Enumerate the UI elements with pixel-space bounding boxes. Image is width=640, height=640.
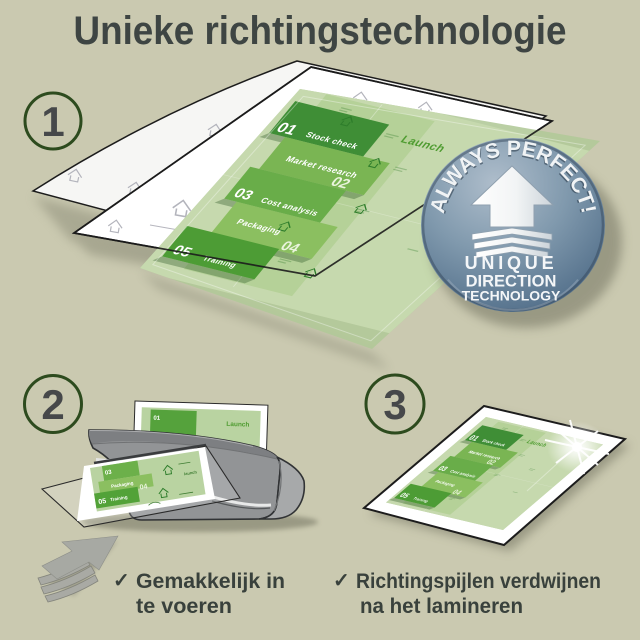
svg-text:TECHNOLOGY: TECHNOLOGY bbox=[462, 288, 561, 304]
svg-text:04: 04 bbox=[139, 483, 148, 491]
svg-text:te voeren: te voeren bbox=[136, 595, 232, 618]
svg-text:2: 2 bbox=[41, 381, 64, 428]
svg-text:Launch: Launch bbox=[226, 421, 249, 429]
svg-text:3: 3 bbox=[383, 381, 406, 428]
svg-text:UNIQUE: UNIQUE bbox=[465, 253, 558, 273]
svg-text:✓: ✓ bbox=[333, 570, 350, 592]
svg-text:Richtingspijlen verdwijnen: Richtingspijlen verdwijnen bbox=[356, 570, 601, 593]
svg-text:Unieke richtingstechnologie: Unieke richtingstechnologie bbox=[74, 9, 567, 53]
svg-text:1: 1 bbox=[41, 98, 64, 145]
svg-text:05: 05 bbox=[98, 498, 107, 506]
svg-text:01: 01 bbox=[153, 416, 161, 422]
svg-text:Gemakkelijk in: Gemakkelijk in bbox=[136, 570, 285, 593]
svg-text:na het lamineren: na het lamineren bbox=[360, 595, 523, 618]
svg-text:✓: ✓ bbox=[113, 570, 130, 592]
